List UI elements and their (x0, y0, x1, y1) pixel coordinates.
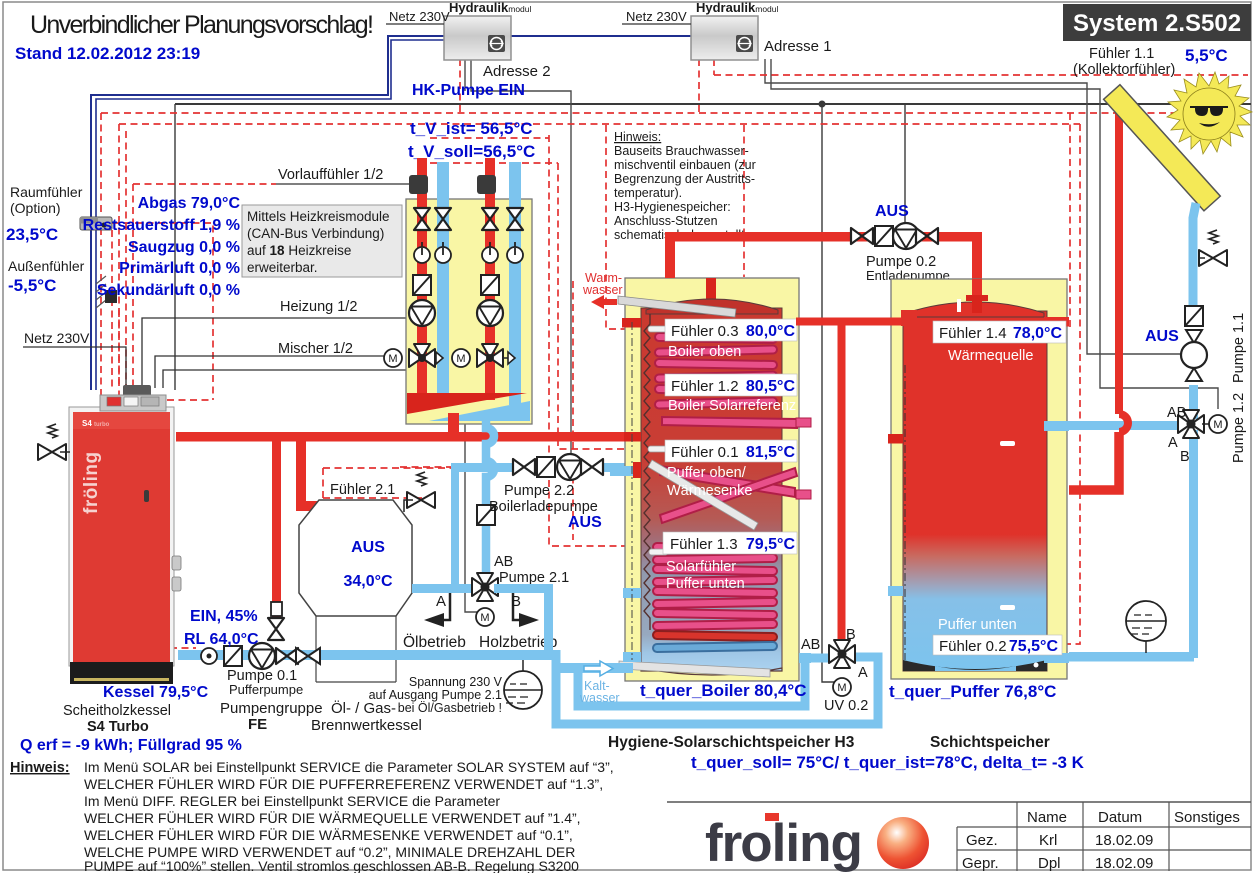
svg-text:Boilerladepumpe: Boilerladepumpe (489, 499, 598, 515)
svg-text:Brennwertkessel: Brennwertkessel (311, 717, 422, 734)
svg-text:AUS: AUS (1145, 328, 1179, 345)
svg-text:Puffer unten: Puffer unten (938, 617, 1017, 633)
svg-text:Im Menü SOLAR bei Einstellpunk: Im Menü SOLAR bei Einstellpunkt SERVICE … (84, 759, 614, 775)
svg-text:Netz 230V: Netz 230V (389, 9, 450, 24)
svg-text:Fühler 0.3: Fühler 0.3 (671, 323, 739, 340)
svg-text:79,5°C: 79,5°C (746, 536, 796, 553)
svg-text:Saugzug 0,0 %: Saugzug 0,0 % (128, 239, 240, 256)
svg-text:(CAN-Bus Verbindung): (CAN-Bus Verbindung) (247, 226, 384, 241)
svg-text:froling: froling (705, 814, 862, 873)
svg-text:Begrenzung der Austritts-: Begrenzung der Austritts- (614, 172, 755, 186)
svg-text:t_quer_Boiler 80,4°C: t_quer_Boiler 80,4°C (640, 681, 806, 700)
svg-text:Bauseits Brauchwasser-: Bauseits Brauchwasser- (614, 144, 749, 158)
svg-text:Pumpe 1.1: Pumpe 1.1 (1231, 313, 1247, 383)
svg-text:Pufferpumpe: Pufferpumpe (229, 682, 303, 697)
svg-text:Im Menü DIFF. REGLER bei Einst: Im Menü DIFF. REGLER bei Einstellpunkt S… (84, 793, 500, 809)
svg-text:Name: Name (1027, 809, 1067, 826)
svg-text:Sekundärluft 0,0 %: Sekundärluft 0,0 % (97, 282, 240, 299)
svg-text:(Option): (Option) (10, 200, 61, 216)
svg-text:Puffer unten: Puffer unten (666, 576, 745, 592)
svg-text:80,5°C: 80,5°C (746, 378, 796, 395)
svg-text:AB: AB (1167, 405, 1186, 421)
svg-text:fröling: fröling (81, 451, 102, 514)
svg-text:S4 Turbo: S4 Turbo (87, 719, 149, 735)
svg-text:Vorlauffühler 1/2: Vorlauffühler 1/2 (278, 167, 383, 183)
svg-text:UV 0.2: UV 0.2 (824, 698, 868, 714)
svg-text:erweiterbar.: erweiterbar. (247, 260, 318, 275)
svg-text:23,5°C: 23,5°C (6, 225, 58, 244)
svg-text:Hinweis:: Hinweis: (614, 130, 661, 144)
svg-text:PUMPE auf “100%” stellen. Vent: PUMPE auf “100%” stellen. Ventil stromlo… (84, 858, 579, 873)
svg-text:RL 64,0°C: RL 64,0°C (184, 631, 259, 648)
svg-text:AUS: AUS (568, 514, 602, 531)
svg-text:WELCHER FÜHLER WIRD FÜR DIE WÄ: WELCHER FÜHLER WIRD FÜR DIE WÄRMESENKE V… (84, 826, 573, 843)
svg-text:Scheitholzkessel: Scheitholzkessel (63, 703, 171, 719)
svg-text:(Kollektorfühler): (Kollektorfühler) (1073, 62, 1175, 78)
svg-text:Stand 12.02.2012 23:19: Stand 12.02.2012 23:19 (15, 44, 200, 63)
svg-text:81,5°C: 81,5°C (746, 444, 796, 461)
svg-text:Restsauerstoff 1,9 %: Restsauerstoff 1,9 % (83, 217, 240, 234)
svg-text:Adresse 2: Adresse 2 (483, 63, 551, 80)
svg-text:A: A (1168, 435, 1178, 451)
svg-text:Kessel 79,5°C: Kessel 79,5°C (103, 684, 209, 701)
svg-text:78,0°C: 78,0°C (1013, 325, 1063, 342)
svg-text:Adresse 1: Adresse 1 (764, 38, 832, 55)
svg-text:Fühler 2.1: Fühler 2.1 (330, 482, 395, 498)
svg-text:Ölbetrieb: Ölbetrieb (403, 633, 466, 651)
svg-text:5,5°C: 5,5°C (1185, 46, 1228, 65)
svg-text:t_V_soll=56,5°C: t_V_soll=56,5°C (408, 142, 535, 161)
svg-text:wasser: wasser (582, 283, 623, 297)
svg-text:Sonstiges: Sonstiges (1174, 809, 1240, 826)
svg-text:Schichtspeicher: Schichtspeicher (930, 734, 1050, 751)
svg-text:18.02.09: 18.02.09 (1095, 855, 1153, 872)
svg-text:B: B (846, 627, 856, 643)
svg-text:Boiler Solarreferenz: Boiler Solarreferenz (668, 398, 796, 414)
svg-text:Dpl: Dpl (1038, 855, 1061, 872)
svg-text:18.02.09: 18.02.09 (1095, 832, 1153, 849)
svg-text:AB: AB (801, 637, 820, 653)
svg-text:H3-Hygienespeicher:: H3-Hygienespeicher: (614, 200, 731, 214)
svg-text:-5,5°C: -5,5°C (8, 276, 56, 295)
svg-text:mischventil einbauen (zur: mischventil einbauen (zur (614, 158, 756, 172)
svg-text:A: A (858, 665, 868, 681)
svg-text:34,0°C: 34,0°C (343, 573, 393, 590)
svg-text:Spannung 230 V: Spannung 230 V (409, 675, 503, 689)
svg-text:Q erf = -9 kWh; Füllgrad 95 %: Q erf = -9 kWh; Füllgrad 95 % (20, 737, 242, 754)
svg-text:Anschluss-Stutzen: Anschluss-Stutzen (614, 214, 718, 228)
svg-text:75,5°C: 75,5°C (1009, 638, 1059, 655)
svg-text:EIN, 45%: EIN, 45% (190, 608, 258, 625)
svg-text:Unverbindlicher Planungsvorsch: Unverbindlicher Planungsvorschlag! (30, 11, 374, 39)
svg-text:B: B (511, 593, 521, 610)
svg-text:Fühler 1.2: Fühler 1.2 (671, 378, 739, 395)
svg-text:AB: AB (494, 554, 513, 570)
svg-text:Primärluft 0,0 %: Primärluft 0,0 % (119, 260, 240, 277)
svg-text:wasser: wasser (579, 691, 620, 705)
svg-text:WELCHER FÜHLER WIRD FÜR DIE WÄ: WELCHER FÜHLER WIRD FÜR DIE WÄRMEQUELLE … (84, 809, 581, 826)
svg-text:Gepr.: Gepr. (962, 855, 999, 872)
svg-text:Außenfühler: Außenfühler (8, 258, 85, 274)
svg-text:B: B (1180, 449, 1190, 465)
svg-text:Pumpengruppe: Pumpengruppe (220, 700, 323, 717)
svg-text:Netz 230V: Netz 230V (24, 330, 90, 346)
svg-text:Wärmequelle: Wärmequelle (948, 348, 1033, 364)
svg-text:FE: FE (248, 716, 267, 733)
svg-text:Netz 230V: Netz 230V (626, 9, 687, 24)
svg-text:Mittels Heizkreismodule: Mittels Heizkreismodule (247, 209, 390, 224)
svg-text:Pumpe 1.2: Pumpe 1.2 (1231, 393, 1247, 463)
svg-text:A: A (436, 593, 446, 610)
svg-text:Fühler 1.3: Fühler 1.3 (670, 536, 738, 553)
svg-text:HK-Pumpe EIN: HK-Pumpe EIN (412, 82, 525, 99)
svg-text:80,0°C: 80,0°C (746, 323, 796, 340)
svg-text:Datum: Datum (1098, 809, 1142, 826)
svg-text:temperatur).: temperatur). (614, 186, 682, 200)
svg-text:Raumfühler: Raumfühler (10, 184, 83, 200)
svg-text:Fühler 0.2: Fühler 0.2 (939, 638, 1007, 655)
svg-text:auf 18 Heizkreise: auf 18 Heizkreise (247, 243, 351, 258)
svg-text:Fühler 0.1: Fühler 0.1 (671, 444, 739, 461)
svg-text:AUS: AUS (875, 203, 909, 220)
svg-text:Puffer oben/: Puffer oben/ (667, 465, 747, 481)
svg-text:System 2.S502: System 2.S502 (1073, 10, 1241, 37)
svg-text:Pumpe 2.2: Pumpe 2.2 (504, 483, 574, 499)
svg-text:Abgas 79,0°C: Abgas 79,0°C (138, 195, 241, 212)
svg-text:Hygiene-Solarschichtspeicher H: Hygiene-Solarschichtspeicher H3 (608, 734, 855, 751)
svg-text:Fühler 1.1: Fühler 1.1 (1089, 46, 1154, 62)
svg-text:Hinweis:: Hinweis: (10, 760, 70, 776)
svg-text:WELCHER FÜHLER WIRD FÜR DIE PU: WELCHER FÜHLER WIRD FÜR DIE PUFFERREFERE… (84, 775, 603, 792)
svg-text:Wärmesenke: Wärmesenke (667, 483, 752, 499)
svg-text:Fühler 1.4: Fühler 1.4 (939, 325, 1007, 342)
svg-text:t_quer_soll= 75°C/ t_quer_ist=: t_quer_soll= 75°C/ t_quer_ist=78°C, delt… (691, 753, 1085, 772)
svg-text:Pumpe 2.1: Pumpe 2.1 (499, 570, 569, 586)
svg-text:Heizung 1/2: Heizung 1/2 (280, 299, 357, 315)
svg-text:t_quer_Puffer 76,8°C: t_quer_Puffer 76,8°C (889, 682, 1056, 701)
svg-text:Solarfühler: Solarfühler (666, 559, 736, 575)
svg-text:Krl: Krl (1039, 832, 1057, 849)
svg-text:auf Ausgang Pumpe 2.1: auf Ausgang Pumpe 2.1 (369, 688, 502, 702)
svg-text:AUS: AUS (351, 539, 385, 556)
svg-text:t_V_ist= 56,5°C: t_V_ist= 56,5°C (410, 119, 533, 138)
svg-text:Mischer 1/2: Mischer 1/2 (278, 341, 353, 357)
svg-text:Gez.: Gez. (966, 832, 998, 849)
svg-text:bei Öl/Gasbetrieb !: bei Öl/Gasbetrieb ! (398, 701, 502, 715)
svg-text:Boiler oben: Boiler oben (668, 344, 741, 360)
